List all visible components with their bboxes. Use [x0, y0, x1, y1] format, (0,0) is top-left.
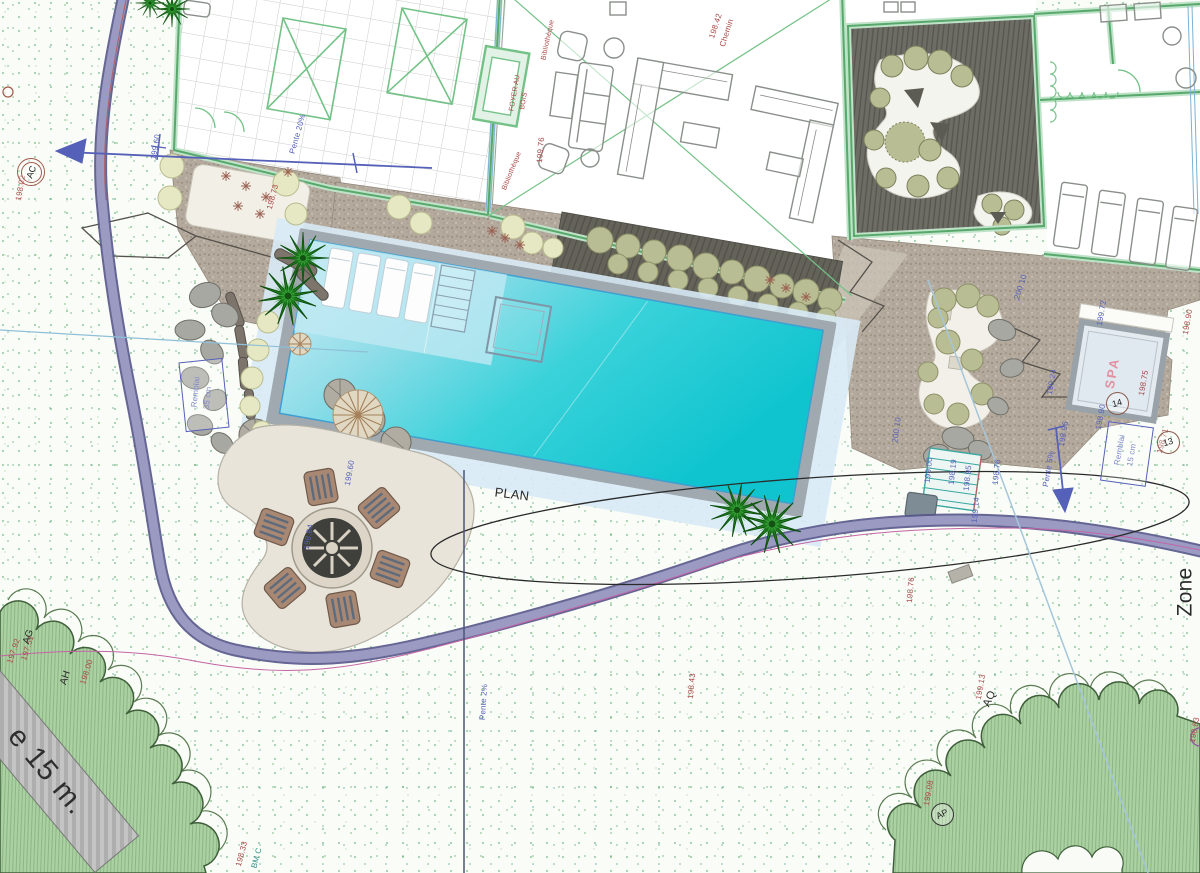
courtyard-deck — [848, 16, 1044, 236]
small-block — [948, 564, 973, 583]
spa — [1065, 304, 1174, 421]
fire-pit-patio — [218, 425, 474, 652]
tree-mass-bottom-right — [878, 672, 1200, 873]
site-plan: 198.42Chemin199.76FOYER AUBOISBibliothèq… — [0, 0, 1200, 873]
plan-drawing — [0, 0, 1200, 873]
